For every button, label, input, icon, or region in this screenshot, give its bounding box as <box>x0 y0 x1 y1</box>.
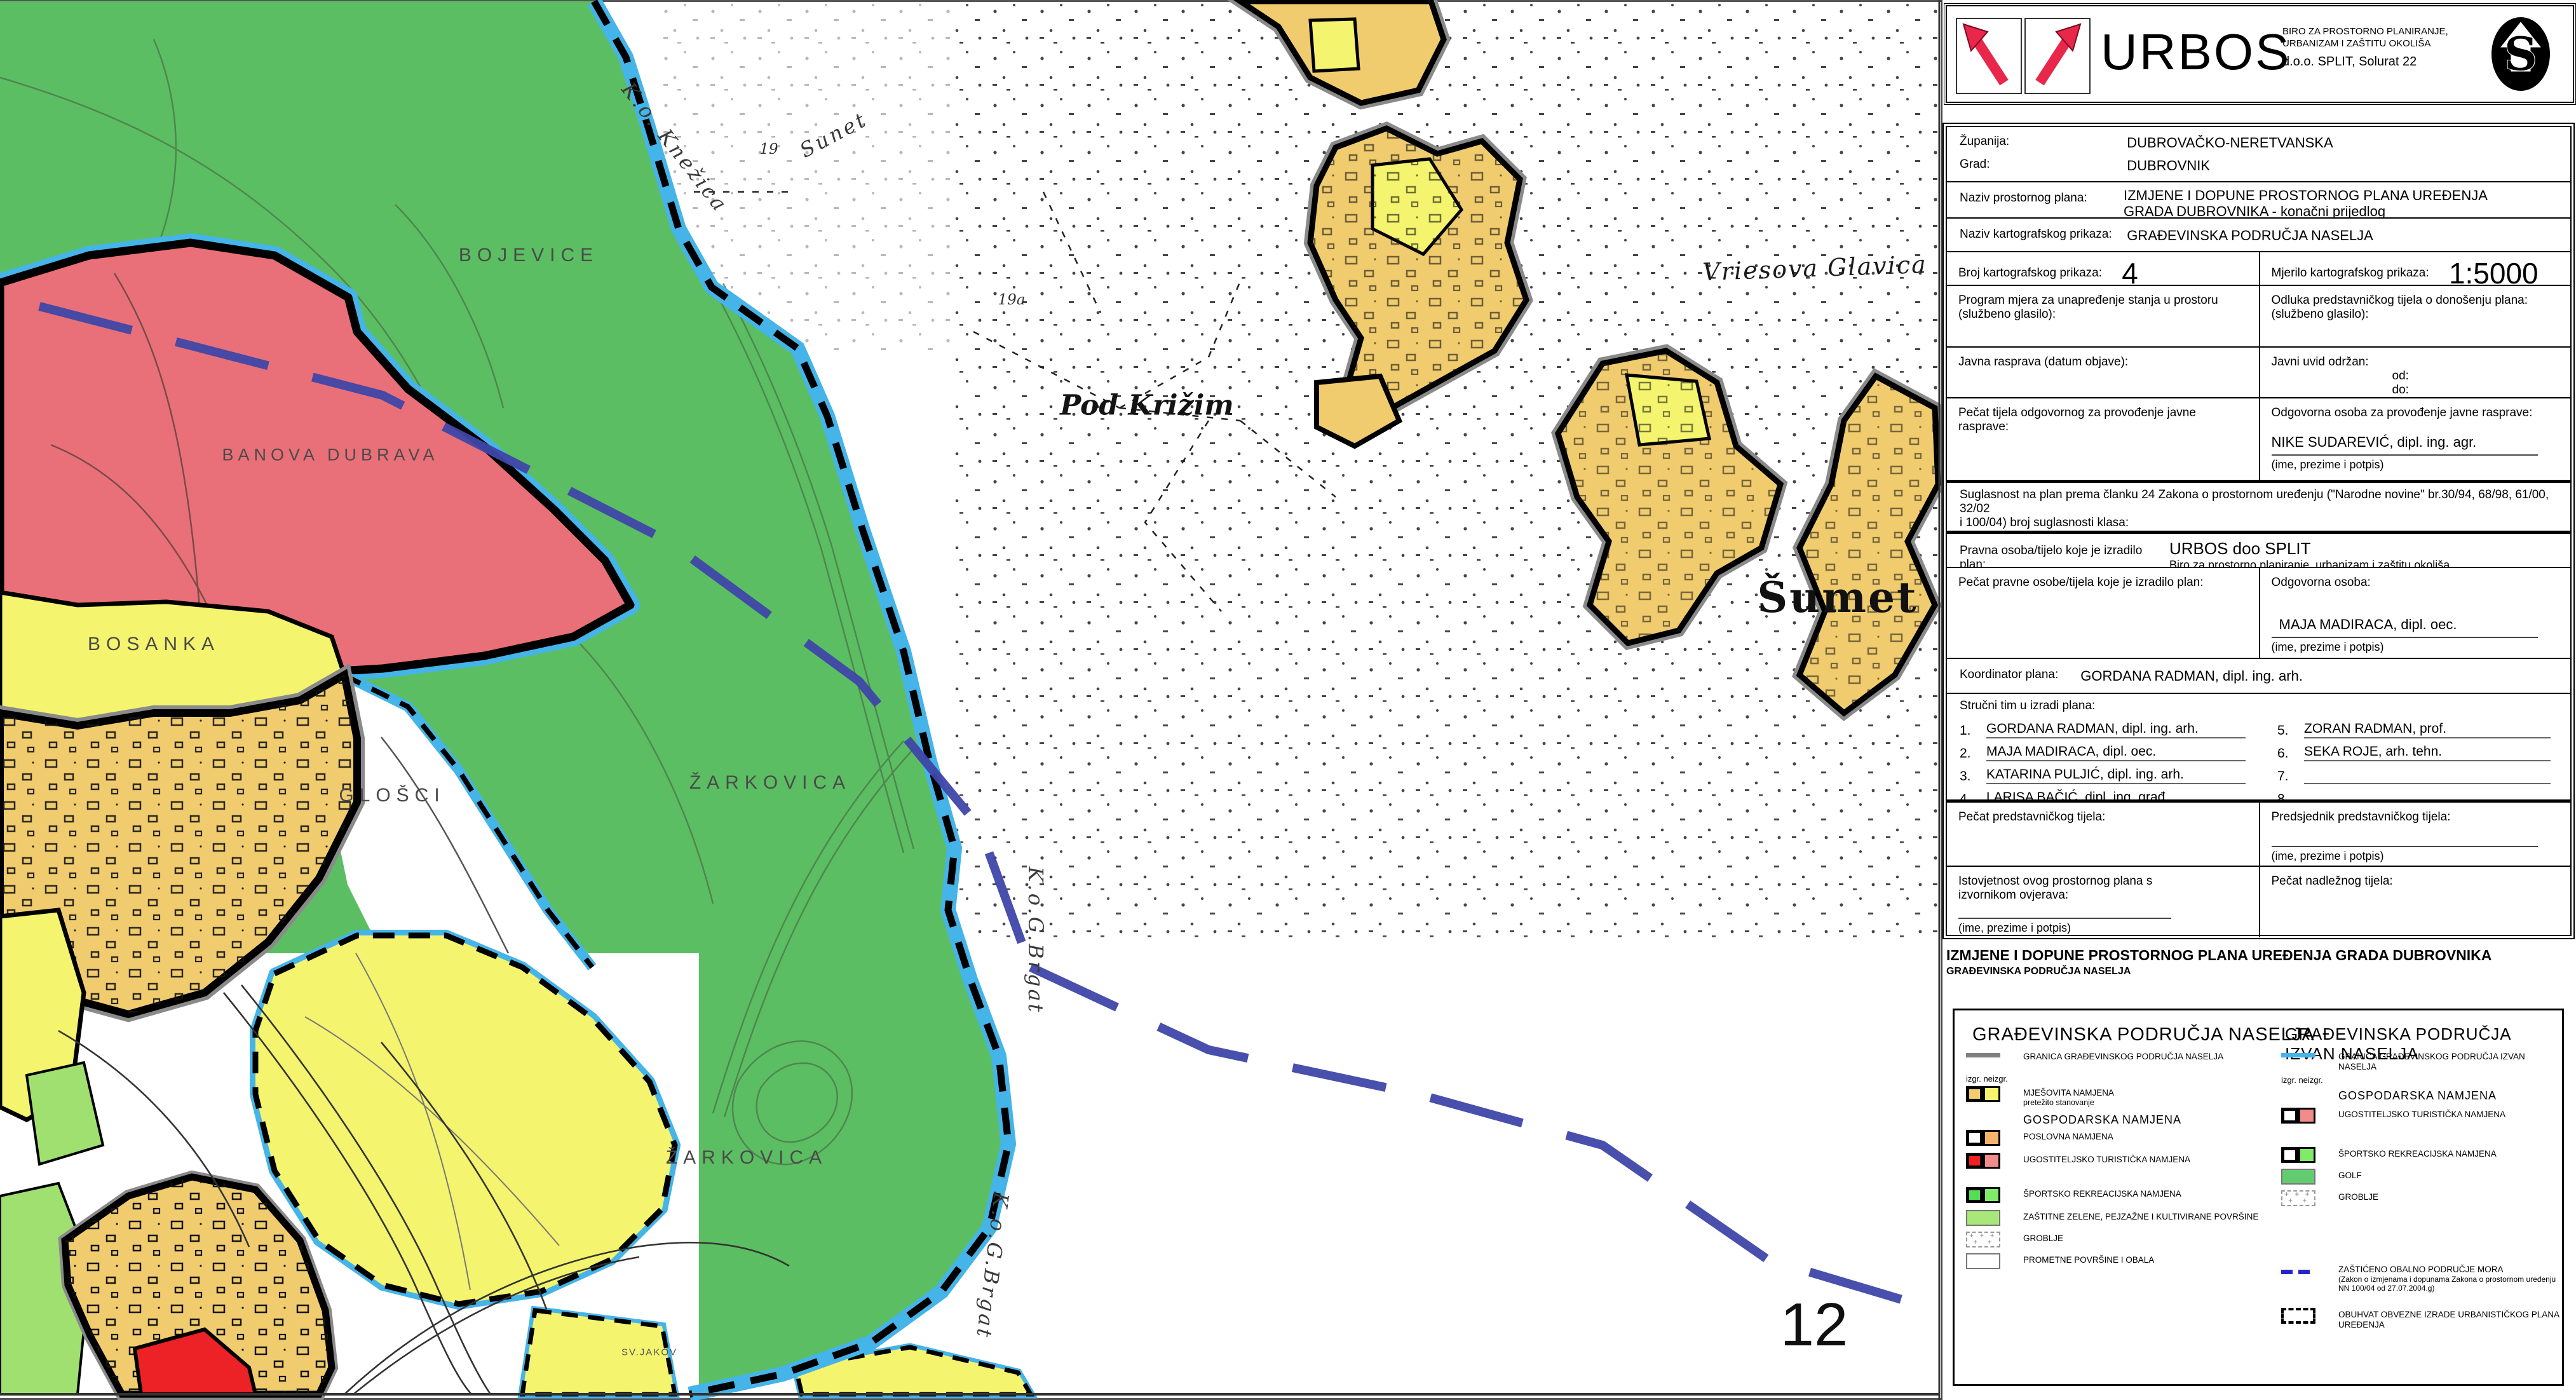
row-pecat-predstavnickog: Pečat predstavničkog tijela: Predsjednik… <box>1947 801 2570 867</box>
urbos-header-box: URBOS BIRO ZA PROSTORNO PLANIRANJE, URBA… <box>1946 5 2574 103</box>
zupanija-label: Županija: <box>1960 135 2124 149</box>
plan-subcaption: GRAĐEVINSKA PODRUČJA NASELJA <box>1946 966 2131 977</box>
label-zarkovica-2: ŽARKOVICA <box>666 1147 827 1169</box>
legend-box: GRAĐEVINSKA PODRUČJA NASELJA GRANICA GRA… <box>1953 1009 2564 1386</box>
golf-swatch <box>2281 1169 2315 1185</box>
row-naziv-prikaza: Naziv kartografskog prikaza: GRAĐEVINSKA… <box>1947 219 2570 252</box>
arrow-left-icon <box>1956 18 2022 94</box>
team-member: 7. <box>2277 765 2551 784</box>
label-sumet: Šumet <box>1758 573 1918 622</box>
pecat-tijela-label: Pečat tijela odgovornog za provođenje ja… <box>1958 406 2221 434</box>
sportsko-izvan-neizgr-swatch <box>2298 1147 2315 1163</box>
label-glosci: GLOŠCI <box>339 785 445 806</box>
brand-tagline: BIRO ZA PROSTORNO PLANIRANJE, URBANIZAM … <box>2282 25 2448 68</box>
grad-value: DUBROVNIK <box>2127 158 2210 173</box>
legend-left-title: GRAĐEVINSKA PODRUČJA NASELJA <box>1972 1024 2315 1045</box>
svg-text:S: S <box>2504 27 2537 81</box>
brand-address: d.o.o. SPLIT, Solurat 22 <box>2282 56 2448 68</box>
tagline-line2: URBANIZAM I ZAŠTITU OKOLIŠA <box>2282 37 2448 50</box>
tagline-line1: BIRO ZA PROSTORNO PLANIRANJE, <box>2282 25 2448 37</box>
row-istovjetnost: Istovjetnost ovog prostornog plana s izv… <box>1947 867 2570 937</box>
odgovorna-name: MAJA MADIRACA, dipl. oec. <box>2272 616 2562 633</box>
legend-obuhvat: OBUHVAT OBVEZNE IZRADE URBANISTIČKOG PLA… <box>2281 1308 2562 1330</box>
pecat-predstavnickog-label: Pečat predstavničkog tijela: <box>1958 810 2250 824</box>
plan-sheet: K.o. Knežica Sunet 19 19a BOJEVICE BANOV… <box>0 0 2576 1400</box>
team-column-left: 1.GORDANA RADMAN, dipl. ing. arh. 2.MAJA… <box>1960 719 2246 801</box>
odluka-label: Odluka predstavničkog tijela o donošenju… <box>2272 294 2562 308</box>
ugostiteljsko-izvan-izgr-swatch <box>2281 1108 2298 1124</box>
row-strucni-tim: Stručni tim u izradi plana: 1.GORDANA RA… <box>1947 694 2570 801</box>
team-member: 8. <box>2277 788 2551 801</box>
row-naziv-plana: Naziv prostornog plana: IZMJENE I DOPUNE… <box>1947 182 2570 219</box>
legend-zastitne: ZAŠTITNE ZELENE, PEJZAŽNE I KULTIVIRANE … <box>1966 1210 2258 1226</box>
uvid-do: do: <box>2272 383 2562 397</box>
label-19a: 19a <box>998 292 1026 308</box>
legend-right-izgr: izgr. neizgr. <box>2281 1075 2323 1085</box>
legend-groblje-naselja: GROBLJE <box>1966 1232 2063 1247</box>
prometne-swatch <box>1966 1253 2000 1269</box>
row-pecat-odgovorna: Pečat tijela odgovornog za provođenje ja… <box>1947 398 2570 481</box>
ugostiteljsko-izgr-swatch <box>1966 1153 1983 1169</box>
obuhvat-swatch <box>2281 1308 2315 1324</box>
s-logo-icon: S <box>2479 11 2562 100</box>
label-bojevice: BOJEVICE <box>459 245 599 266</box>
row-broj-mjerilo: Broj kartografskog prikaza: 4 Mjerilo ka… <box>1947 252 2570 286</box>
groblje-swatch <box>1966 1232 2000 1247</box>
label-ko-brgat-1: K.o.G.Brgat <box>1024 867 1048 1015</box>
legend-groblje-izvan: GROBLJE <box>2281 1190 2378 1206</box>
ime-potpis-3: (ime, prezime i potpis) <box>2272 850 2562 863</box>
legend-ugostiteljsko-izvan: UGOSTITELJSKO TURISTIČKA NAMJENA <box>2281 1108 2505 1124</box>
sheet-number: 12 <box>1780 1290 1848 1360</box>
legend-left-gospodarska: GOSPODARSKA NAMJENA <box>2023 1113 2181 1127</box>
legend-prometne: PROMETNE POVRŠINE I OBALA <box>1966 1253 2154 1269</box>
naziv-prikaza-value: GRAĐEVINSKA PODRUČJA NASELJA <box>2127 228 2373 243</box>
pravna-label: Pravna osoba/tijelo koje je izradilo pla… <box>1960 539 2169 568</box>
sportsko-izgr-swatch <box>1966 1187 1983 1203</box>
mjesovita-neizgr-swatch <box>1983 1086 2000 1102</box>
row-koordinator: Koordinator plana: GORDANA RADMAN, dipl.… <box>1947 659 2570 694</box>
legend-golf: GOLF <box>2281 1169 2362 1185</box>
pravna-value2: Biro za prostorno planiranje, urbanizam … <box>2169 559 2450 568</box>
naziv-prikaza-label: Naziv kartografskog prikaza: <box>1960 228 2124 241</box>
legend-sportsko-naselja: ŠPORTSKO REKREACIJSKA NAMJENA <box>1966 1187 2181 1203</box>
panel-divider <box>1941 0 1942 1400</box>
grad-label: Grad: <box>1960 158 2124 172</box>
legend-zop: ZAŠTIĆENO OBALNO PODRUČJE MORA (Zakon o … <box>2281 1265 2556 1293</box>
team-member: 3.KATARINA PULJIĆ, dipl. ing. arh. <box>1960 765 2246 784</box>
javni-uvid-label: Javni uvid održan: <box>2272 355 2562 369</box>
team-member: 6.SEKA ROJE, arh. tehn. <box>2277 742 2551 761</box>
naziv-plana-value2: GRADA DUBROVNIKA - konačni prijedlog <box>2124 203 2385 219</box>
koordinator-label: Koordinator plana: <box>1960 668 2077 682</box>
team-member: 4.LARISA BAČIĆ, dipl. ing. građ. <box>1960 788 2246 801</box>
naziv-plana-label: Naziv prostornog plana: <box>1960 187 2124 219</box>
team-member: 5.ZORAN RADMAN, prof. <box>2277 719 2551 738</box>
broj-label: Broj kartografskog prikaza: <box>1958 266 2102 280</box>
title-block: Županija: DUBROVAČKO-NERETVANSKA Grad: D… <box>1946 126 2572 936</box>
granica-izvan-swatch <box>2281 1053 2315 1057</box>
row-pecat-pravne: Pečat pravne osobe/tijela koje je izradi… <box>1947 568 2570 659</box>
odgovorna-rasprava-label: Odgovorna osoba za provođenje javne rasp… <box>2272 406 2562 420</box>
granica-naselja-swatch <box>1966 1053 2000 1057</box>
arrow-right-icon <box>2024 18 2091 94</box>
info-panel: URBOS BIRO ZA PROSTORNO PLANIRANJE, URBA… <box>1941 0 2576 1400</box>
naziv-plana-value1: IZMJENE I DOPUNE PROSTORNOG PLANA UREĐEN… <box>2124 187 2488 203</box>
pravna-value1: URBOS doo SPLIT <box>2169 539 2311 558</box>
mjesovita-izgr-swatch <box>1966 1086 1983 1102</box>
legend-granica-naselja: GRANICA GRAĐEVINSKOG PODRUČJA NASELJA <box>1966 1050 2223 1062</box>
legend-ugostiteljsko-naselja: UGOSTITELJSKO TURISTIČKA NAMJENA <box>1966 1153 2190 1169</box>
row-program-odluka: Program mjera za unapređenje stanja u pr… <box>1947 286 2570 348</box>
koordinator-value: GORDANA RADMAN, dipl. ing. arh. <box>2080 668 2303 684</box>
label-19: 19 <box>759 141 778 158</box>
tim-label: Stručni tim u izradi plana: <box>1947 694 2570 713</box>
team-column-right: 5.ZORAN RADMAN, prof. 6.SEKA ROJE, arh. … <box>2277 719 2551 801</box>
row-javna-uvid: Javna rasprava (datum objave): Javni uvi… <box>1947 348 2570 398</box>
pecat-pravne-label: Pečat pravne osobe/tijela koje je izradi… <box>1958 576 2250 590</box>
label-sv-jakov: SV.JAKOV <box>621 1347 677 1358</box>
suglasnost-text2: i 100/04) broj suglasnosti klasa: <box>1960 516 2560 530</box>
row-pravna-osoba: Pravna osoba/tijelo koje je izradilo pla… <box>1947 532 2570 568</box>
legend-right-gospodarska: GOSPODARSKA NAMJENA <box>2338 1089 2497 1103</box>
poslovna-neizgr-swatch <box>1983 1130 2000 1146</box>
sportsko-neizgr-swatch <box>1983 1187 2000 1203</box>
team-member: 1.GORDANA RADMAN, dipl. ing. arh. <box>1960 719 2246 738</box>
odluka-label2: (službeno glasilo): <box>2272 308 2562 322</box>
legend-mjesovita: MJEŠOVITA NAMJENA pretežito stanovanje <box>1966 1086 2114 1107</box>
brand-urbos: URBOS <box>2101 23 2291 81</box>
legend-sportsko-izvan: ŠPORTSKO REKREACIJSKA NAMJENA <box>2281 1147 2497 1163</box>
groblje-izvan-swatch <box>2281 1190 2315 1206</box>
label-banova-dubrava: BANOVA DUBRAVA <box>222 445 438 465</box>
ugostiteljsko-izvan-neizgr-swatch <box>2298 1108 2315 1124</box>
legend-left-izgr: izgr. neizgr. <box>1966 1074 2008 1084</box>
uvid-od: od: <box>2272 369 2562 383</box>
team-member: 2.MAJA MADIRACA, dipl. oec. <box>1960 742 2246 761</box>
label-bosanka: BOSANKA <box>88 634 220 655</box>
legend-granica-izvan: GRANICA GRAĐEVINSKOG PODRUČJA IZVAN NASE… <box>2281 1050 2562 1072</box>
ime-potpis-1: (ime, prezime i potpis) <box>2272 458 2562 472</box>
odgovorna-label: Odgovorna osoba: <box>2272 576 2562 590</box>
predsjednik-label: Predsjednik predstavničkog tijela: <box>2272 810 2562 824</box>
broj-value: 4 <box>2122 257 2138 286</box>
ime-potpis-2: (ime, prezime i potpis) <box>2272 641 2562 654</box>
suglasnost-text1: Suglasnost na plan prema članku 24 Zakon… <box>1960 488 2560 516</box>
row-zupanija-grad: Županija: DUBROVAČKO-NERETVANSKA Grad: D… <box>1947 127 2570 182</box>
javna-label: Javna rasprava (datum objave): <box>1958 355 2250 369</box>
poslovna-izgr-swatch <box>1966 1130 1983 1146</box>
istovjetnost-label: Istovjetnost ovog prostornog plana s izv… <box>1958 874 2183 902</box>
speckle-texture <box>953 0 1938 941</box>
plan-caption: IZMJENE I DOPUNE PROSTORNOG PLANA UREĐEN… <box>1946 947 2491 964</box>
mjerilo-value: 1:5000 <box>2449 257 2539 286</box>
odgovorna-rasprava-name: NIKE SUDAREVIĆ, dipl. ing. agr. <box>2272 434 2562 451</box>
zastitne-swatch <box>1966 1210 2000 1226</box>
legend-poslovna: POSLOVNA NAMJENA <box>1966 1130 2113 1146</box>
sportsko-izvan-izgr-swatch <box>2281 1147 2298 1163</box>
label-zarkovica-1: ŽARKOVICA <box>689 772 851 794</box>
pecat-nadleznog-label: Pečat nadležnog tijela: <box>2272 874 2562 888</box>
zop-swatch <box>2281 1270 2315 1274</box>
row-suglasnost: Suglasnost na plan prema članku 24 Zakon… <box>1947 481 2570 532</box>
ime-potpis-4: (ime, prezime i potpis) <box>1958 921 2183 935</box>
label-pod-krizim: Pod Križim <box>1060 390 1234 422</box>
ugostiteljsko-neizgr-swatch <box>1983 1153 2000 1169</box>
program-label: Program mjera za unapređenje stanja u pr… <box>1958 294 2250 308</box>
zupanija-value: DUBROVAČKO-NERETVANSKA <box>2127 135 2333 151</box>
mjerilo-label: Mjerilo kartografskog prikaza: <box>2272 266 2429 280</box>
program-label2: (službeno glasilo): <box>1958 308 2250 322</box>
